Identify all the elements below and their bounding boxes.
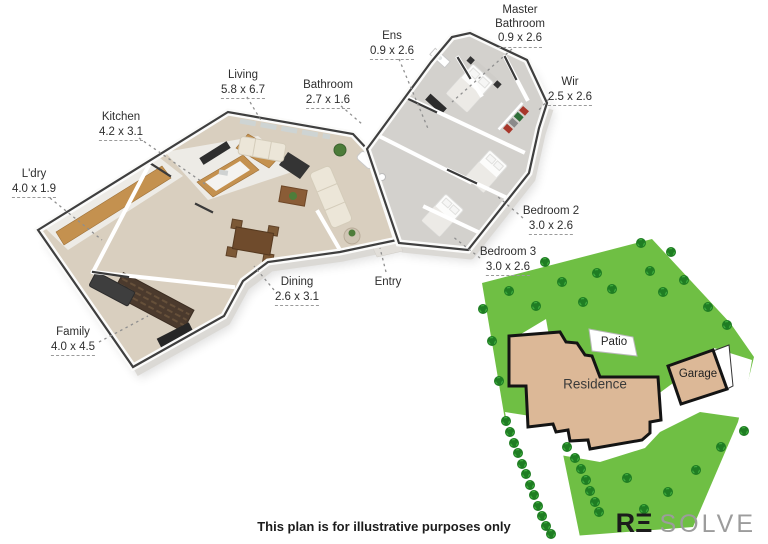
- room-dimensions: 2.6 x 3.1: [275, 291, 319, 307]
- room-name: Bedroom 2: [523, 205, 579, 219]
- logo-solve-text: SOLVE: [659, 512, 756, 537]
- room-dimensions: 3.0 x 2.6: [486, 261, 530, 277]
- room-label-entry: Entry: [375, 276, 402, 290]
- site-label-residence: Residence: [563, 377, 627, 392]
- room-name: Wir: [548, 76, 592, 90]
- room-label-family: Family 4.0 x 4.5: [51, 326, 95, 356]
- site-label-garage: Garage: [679, 368, 717, 380]
- room-dimensions: 2.5 x 2.6: [548, 91, 592, 107]
- room-dimensions: 3.0 x 2.6: [529, 220, 573, 236]
- room-name: Family: [51, 326, 95, 340]
- plan-canvas: [0, 0, 768, 544]
- room-label-ldry: L'dry 4.0 x 1.9: [12, 168, 56, 198]
- room-name: Ens: [370, 30, 414, 44]
- room-name: Master Bathroom: [489, 4, 551, 31]
- room-name: Living: [221, 69, 265, 83]
- room-name: Dining: [275, 276, 319, 290]
- room-dimensions: 4.0 x 4.5: [51, 341, 95, 357]
- room-dimensions: 2.7 x 1.6: [306, 94, 350, 110]
- room-label-dining: Dining 2.6 x 3.1: [275, 276, 319, 306]
- room-name: Kitchen: [99, 111, 143, 125]
- room-label-living: Living 5.8 x 6.7: [221, 69, 265, 99]
- room-dimensions: 4.2 x 3.1: [99, 126, 143, 142]
- room-label-bedroom-3: Bedroom 3 3.0 x 2.6: [480, 246, 536, 276]
- room-label-bathroom: Bathroom 2.7 x 1.6: [303, 79, 353, 109]
- resolve-logo: RΞ SOLVE: [616, 510, 756, 537]
- room-name: Bathroom: [303, 79, 353, 93]
- room-dimensions: 0.9 x 2.6: [498, 32, 542, 48]
- room-label-wir: Wir 2.5 x 2.6: [548, 76, 592, 106]
- entry-plant: [349, 230, 356, 237]
- room-name: L'dry: [12, 168, 56, 182]
- room-label-ens: Ens 0.9 x 2.6: [370, 30, 414, 60]
- room-dimensions: 0.9 x 2.6: [370, 45, 414, 61]
- plant: [334, 144, 346, 156]
- site-label-patio: Patio: [601, 336, 627, 348]
- logo-re-text: RΞ: [616, 510, 653, 537]
- room-dimensions: 5.8 x 6.7: [221, 84, 265, 100]
- room-dimensions: 4.0 x 1.9: [12, 183, 56, 199]
- room-label-kitchen: Kitchen 4.2 x 3.1: [99, 111, 143, 141]
- room-name: Entry: [375, 276, 402, 290]
- room-label-master-bathroom: Master Bathroom 0.9 x 2.6: [489, 4, 551, 48]
- room-name: Bedroom 3: [480, 246, 536, 260]
- room-label-bedroom-2: Bedroom 2 3.0 x 2.6: [523, 205, 579, 235]
- floorplan-page: Master Bathroom 0.9 x 2.6 Ens 0.9 x 2.6 …: [0, 0, 768, 544]
